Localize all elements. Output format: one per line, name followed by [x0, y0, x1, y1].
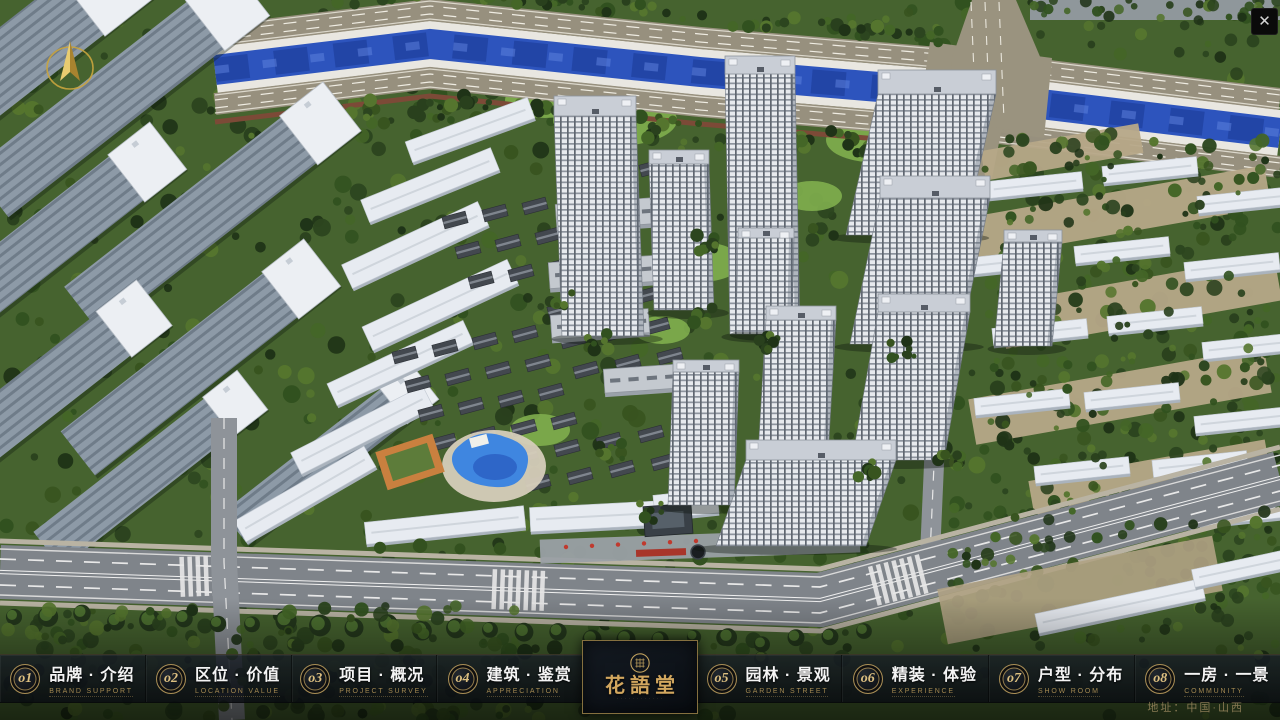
nav-label-zh: 园林 · 景观 — [746, 661, 831, 685]
nav-group-left: o1 品牌 · 介绍BRAND SUPPORT o2 区位 · 价值LOCATI… — [0, 655, 582, 702]
nav-item-one-room-one-view[interactable]: o8 一房 · 一景COMMUNITY — [1135, 655, 1280, 702]
nav-number-badge: o7 — [999, 664, 1029, 694]
nav-group-right: o5 园林 · 景观GARDEN STREET o6 精装 · 体验EXPERI… — [696, 655, 1280, 702]
nav-item-garden-landscape[interactable]: o5 园林 · 景观GARDEN STREET — [696, 655, 842, 702]
close-button[interactable]: ✕ — [1251, 8, 1278, 35]
logo-subtext: · · · · · · · · · · · · — [617, 697, 663, 700]
logo-huayutang[interactable]: 花語堂 · · · · · · · · · · · · — [582, 640, 698, 714]
nav-number-badge: o4 — [448, 664, 478, 694]
nav-label-en: COMMUNITY — [1184, 688, 1243, 697]
nav-number-badge: o3 — [300, 664, 330, 694]
address-text: 地址：中国·山西 — [1147, 699, 1244, 715]
nav-number-badge: o1 — [10, 664, 40, 694]
nav-label-zh: 项目 · 概况 — [339, 661, 424, 685]
nav-label-en: GARDEN STREET — [746, 688, 829, 697]
nav-label-zh: 户型 · 分布 — [1038, 661, 1123, 685]
nav-label-en: EXPERIENCE — [892, 688, 955, 697]
logo-title: 花語堂 — [600, 675, 680, 697]
nav-label-zh: 建筑 · 鉴赏 — [487, 661, 572, 685]
nav-label-zh: 精装 · 体验 — [892, 661, 977, 685]
nav-label-zh: 一房 · 一景 — [1184, 661, 1269, 685]
nav-number-badge: o2 — [156, 664, 186, 694]
nav-item-interior-experience[interactable]: o6 精装 · 体验EXPERIENCE — [842, 655, 988, 702]
nav-label-en: SHOW ROOM — [1038, 688, 1100, 697]
nav-label-en: BRAND SUPPORT — [49, 688, 133, 697]
nav-item-architecture-appreciation[interactable]: o4 建筑 · 鉴赏APPRECIATION — [437, 655, 582, 702]
nav-item-project-overview[interactable]: o3 项目 · 概况PROJECT SURVEY — [292, 655, 438, 702]
nav-item-location-value[interactable]: o2 区位 · 价值LOCATION VALUE — [146, 655, 292, 702]
nav-number-badge: o8 — [1145, 664, 1175, 694]
nav-item-floorplan-distribution[interactable]: o7 户型 · 分布SHOW ROOM — [989, 655, 1135, 702]
nav-number-badge: o6 — [853, 664, 883, 694]
nav-label-zh: 品牌 · 介绍 — [49, 661, 134, 685]
nav-label-en: APPRECIATION — [487, 688, 560, 697]
nav-label-en: LOCATION VALUE — [195, 688, 280, 697]
seal-emblem-icon — [629, 652, 651, 674]
nav-label-zh: 区位 · 价值 — [195, 661, 280, 685]
nav-item-brand-intro[interactable]: o1 品牌 · 介绍BRAND SUPPORT — [0, 655, 146, 702]
app-window: ✕ o1 品牌 · 介绍BRAND SUPPORT o2 区位 · 价值LOCA… — [0, 0, 1280, 720]
aerial-masterplan-render — [0, 0, 1280, 720]
nav-label-en: PROJECT SURVEY — [339, 688, 427, 697]
nav-number-badge: o5 — [707, 664, 737, 694]
